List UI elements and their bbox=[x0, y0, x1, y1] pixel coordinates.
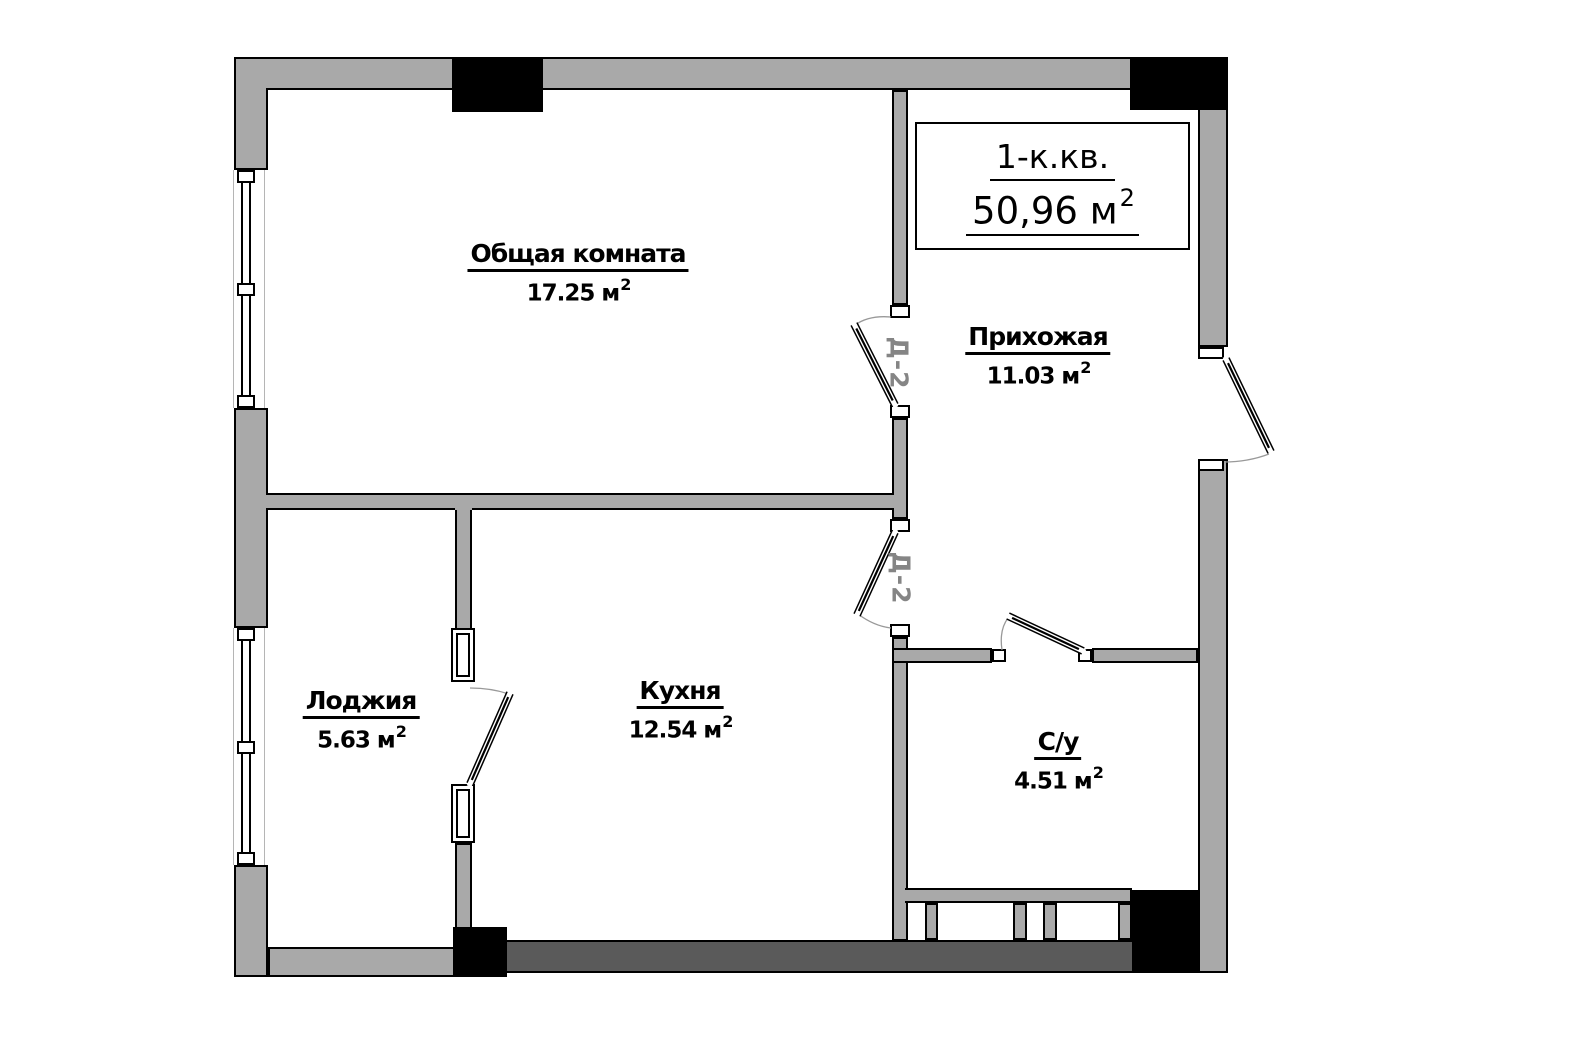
apartment-type-label: 1-к.кв. bbox=[990, 137, 1115, 181]
window-face-line bbox=[264, 628, 265, 865]
vent-shaft-divider-3 bbox=[1043, 903, 1057, 940]
window-mullion bbox=[237, 395, 255, 408]
door-leaf-entrance bbox=[1224, 359, 1271, 462]
column-top-right bbox=[1130, 57, 1228, 110]
window-mullion bbox=[237, 852, 255, 865]
vent-shaft-divider-4 bbox=[1118, 903, 1132, 940]
wall-junction-patch bbox=[264, 495, 270, 508]
room-name: С/у bbox=[1035, 729, 1082, 760]
wall-right-upper bbox=[1198, 100, 1228, 347]
wall-junction-patch bbox=[236, 86, 266, 92]
door-leaf-bathroom bbox=[1001, 616, 1083, 651]
total-area-value: 50,96 м bbox=[972, 189, 1118, 232]
wall-junction-patch bbox=[904, 890, 910, 901]
vent-shaft-band bbox=[905, 888, 1132, 903]
room-area: 5.63 м2 bbox=[303, 724, 420, 754]
wall-hallway-upper bbox=[892, 90, 908, 305]
wall-junction-patch bbox=[894, 650, 908, 661]
room-label-living: Общая комната 17.25 м2 bbox=[467, 241, 688, 307]
door-jamb-cap bbox=[1198, 459, 1224, 471]
door-jamb-cap bbox=[890, 305, 910, 318]
wall-loggia-divider-lower bbox=[455, 843, 472, 940]
wall-kitchen-bottom-dark bbox=[505, 940, 1177, 973]
door-swing-arc bbox=[1224, 454, 1269, 462]
room-area: 12.54 м2 bbox=[629, 714, 732, 744]
room-area: 4.51 м2 bbox=[1014, 765, 1102, 795]
room-area: 11.03 м2 bbox=[965, 360, 1110, 390]
window-face-line bbox=[264, 170, 265, 408]
wall-loggia-bottom bbox=[268, 947, 455, 977]
room-name: Общая комната bbox=[467, 241, 688, 272]
vent-shaft-divider-2 bbox=[1013, 903, 1027, 940]
door-swing-arc bbox=[1001, 618, 1008, 650]
room-label-kitchen: Кухня 12.54 м2 bbox=[629, 678, 732, 744]
door-mark-lower: Д-2 bbox=[887, 551, 916, 604]
wall-top bbox=[234, 57, 1228, 90]
window-mullion bbox=[237, 283, 255, 296]
room-label-hallway: Прихожая 11.03 м2 bbox=[965, 324, 1110, 390]
room-label-loggia: Лоджия 5.63 м2 bbox=[303, 688, 420, 754]
window-face-line bbox=[233, 170, 234, 408]
column-bottom-center bbox=[453, 927, 507, 977]
door-jamb-cap bbox=[1078, 649, 1092, 662]
room-name: Лоджия bbox=[303, 688, 420, 719]
door-jamb-cap bbox=[890, 624, 910, 637]
door-swing-arc bbox=[858, 614, 891, 628]
total-area-sup: 2 bbox=[1120, 184, 1135, 212]
balcony-window-frame bbox=[456, 789, 470, 838]
window-mullion bbox=[237, 741, 255, 754]
wall-left-pier-bottom bbox=[234, 865, 268, 977]
window-mullion bbox=[237, 628, 255, 641]
wall-left-pier-mid bbox=[234, 408, 268, 628]
wall-loggia-divider-upper bbox=[455, 500, 472, 630]
door-mark-upper: Д-2 bbox=[885, 336, 914, 389]
door-swing-arc bbox=[470, 688, 509, 694]
wall-living-bottom bbox=[266, 493, 894, 510]
wall-right-lower bbox=[1198, 459, 1228, 973]
wall-junction-patch bbox=[890, 495, 896, 508]
balcony-window-frame bbox=[456, 633, 470, 677]
column-top-center bbox=[452, 57, 543, 112]
door-swing-arc bbox=[855, 317, 891, 325]
room-area: 17.25 м2 bbox=[467, 277, 688, 307]
room-label-bathroom: С/у 4.51 м2 bbox=[1014, 729, 1102, 795]
total-area-label: 50,96 м2 bbox=[966, 188, 1139, 236]
room-name: Кухня bbox=[636, 678, 723, 709]
door-leaf-balcony bbox=[470, 688, 510, 784]
balcony-window-block bbox=[451, 628, 475, 682]
vent-shaft-divider-1 bbox=[925, 903, 938, 940]
door-jamb-cap bbox=[890, 405, 910, 418]
wall-bathroom-top-right bbox=[1092, 648, 1198, 663]
door-jamb-cap bbox=[1198, 347, 1224, 359]
window-mullion bbox=[237, 170, 255, 183]
door-jamb-cap bbox=[890, 519, 910, 532]
floor-plan: 1-к.кв. 50,96 м2 Общая комната 17.25 м2 … bbox=[0, 0, 1589, 1041]
title-box: 1-к.кв. 50,96 м2 bbox=[915, 122, 1190, 250]
wall-junction-patch bbox=[455, 495, 472, 510]
column-bottom-right bbox=[1132, 890, 1198, 973]
balcony-window-block bbox=[451, 784, 475, 843]
room-name: Прихожая bbox=[965, 324, 1110, 355]
window-face-line bbox=[233, 628, 234, 865]
door-jamb-cap bbox=[992, 649, 1006, 662]
